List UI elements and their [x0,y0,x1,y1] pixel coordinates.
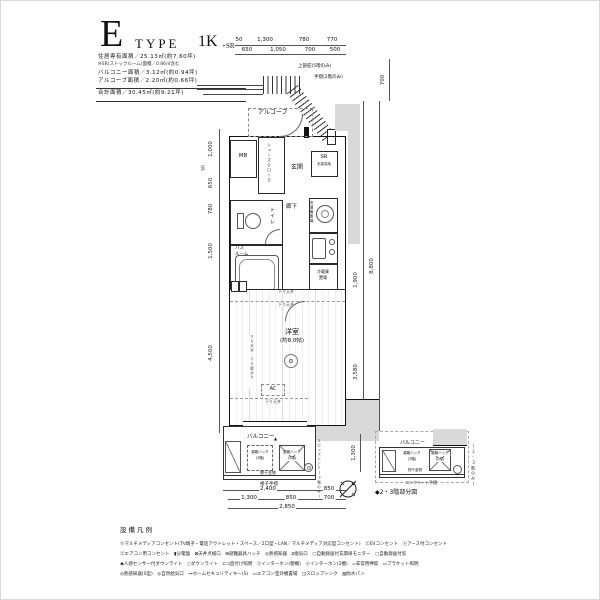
corridor-line [203,94,263,95]
dim-label: 50 [202,165,207,171]
subplan-rail-line [379,474,465,475]
dim-label: 700 [323,496,336,502]
washer-label: 洗濯機置場 [310,201,314,231]
dim-label: 500 [330,48,341,54]
subplan-roof-shading [433,429,467,446]
legend-row: ㋓エアコン用コンセント ▮分電盤 ⊠天井点検口 ⊞避難器具ハッチ ◎熱感知器 ⧄… [120,551,406,557]
subplan-balcony-label: バルコニー [399,441,426,446]
escape-hatch-2f-label1: 避難ハッチ [282,451,302,455]
dim-label: 3,580 [353,364,359,380]
fridge-label-line2: 置場 [319,276,327,280]
dim-line [379,101,380,431]
dim-label: 770 [327,38,338,44]
type-word: TYPE [135,37,180,50]
dim-label: 2,850 [278,505,296,511]
escape-hatch-3f-label1: 避難ハッチ [250,451,270,455]
legend-header: 設備凡例 [120,527,154,534]
plan-type-suffix: +SR [222,43,235,50]
dim-label: 1,500 [208,243,214,259]
hall-label: 廊下 [286,205,297,211]
dim-line [219,129,220,433]
toilet-bowl-icon [245,213,261,229]
compass-icon [337,478,359,500]
subplan-rail-label: コンクリート手摺 [405,481,437,485]
subplan-hatch3-label2: (3階) [407,458,417,462]
dim-label: 650 [242,48,253,54]
spec-total: 合計面積／30.45㎡(約9.21坪) [98,91,184,97]
balcony-partition [225,441,241,473]
escape-hatch-3f-label2: (3階) [255,457,265,461]
dim-label: 700 [305,48,316,54]
storage-room-sublabel: 天袋収納 [317,163,331,167]
dim-label: 850 [285,496,298,502]
plan-type: 1K [198,34,218,50]
subplan-hatch2-label2: (2階) [435,458,445,462]
dim-line [389,59,390,101]
common-area-shading [335,104,360,131]
floor-plan-page: E TYPE 1K +SR 住居専有面積／25.13㎡(約7.60坪) ※SR(… [0,0,600,600]
alarm-box [239,281,247,292]
balcony-marker: ▲ [274,437,277,441]
dim-line [360,434,361,472]
dim-line [235,54,346,55]
dim-label: 1,300 [240,496,258,502]
subplan-hatch3-label1: 避難ハッチ [402,452,422,456]
down-ceiling-label: 下り天井 [264,400,282,404]
corridor-line [197,89,263,90]
stove-burner-icon [329,249,335,255]
annotation-handrail: 手摺(2階のみ) [313,76,344,81]
subplan-caption: ◆2・3階部分図 [375,490,417,496]
balcony-rail-line [223,475,316,476]
dim-line [363,101,364,431]
dim-label: 780 [208,204,214,215]
subplan-hatch2-label1: 避難ハッチ [430,452,450,456]
title-divider-bottom [96,101,246,102]
ceiling-light-center-icon [289,359,293,363]
dim-label: 1,000 [208,141,214,157]
dim-label: 650 [208,178,214,189]
dim-label: 1,050 [270,48,286,54]
legend-row: ㋮マルチメディアコンセント(TV端子・電話アウトレット・スペース／2口型・LAN… [120,541,447,547]
slop-sink-inner-icon [307,466,311,470]
washing-machine-drum-icon [321,210,329,218]
dim-label: 8,800 [369,258,375,274]
balcony-label: バルコニー [246,435,275,441]
legend-row: ◎熱感知器(S型) ◎自然給気口 ⊶ホームセキュリティキー(S) ▭エアコン室外… [120,571,365,577]
subplan-partition [382,450,396,472]
spec-line-3: バルコニー面積／3.12㎡(約0.94坪) [98,71,198,77]
type-letter: E [100,15,123,53]
dim-label: 4,500 [208,345,214,361]
dim-label: 850 [323,487,336,493]
storage-room-label: SR [321,155,328,160]
legend-row: ◉人感センサー付ダウンライト ○ダウンライト ⊏⊐直付け照明 ㋑インターホン(親… [120,561,419,567]
subplan-pole-label: 物干金物 [407,469,423,473]
spec-line-1: 住居専有面積／25.13㎡(約7.60坪) [98,55,196,61]
dim-label: 50 [236,38,243,44]
kitchen-sink-icon [312,238,326,259]
entrance-label: 玄関 [291,165,303,171]
fridge-label-line1: 冷蔵庫 [317,270,329,274]
common-area-shading [348,129,360,244]
laundry-pole-label: 物干金物 [259,471,277,475]
corridor-line [197,85,263,86]
meter-box-label: MB [239,154,248,160]
down-ceiling-label: 下り天井 [277,290,295,294]
wall-note-label: 下り天井・下り壁あり [249,335,255,387]
main-room-size: (約8.0帖) [279,339,305,345]
dim-label: 2,400 [259,487,277,493]
spec-line-2: ※SR(ストックルーム)面積／0.86㎡含む [98,63,180,68]
dim-label: 1,300 [257,38,273,44]
dim-label: 1,300 [351,445,357,461]
subplan-slop-sink-icon [453,465,462,474]
dim-label: 1,900 [353,272,359,288]
escape-hatch-2f-label2: (2階) [287,457,297,461]
dim-label: 700 [380,75,386,86]
stove-burner-icon [329,239,335,245]
bath-label-line1: バス [235,247,244,252]
toilet-tank-icon [237,213,244,229]
ac-label: AC [269,387,278,392]
subplan-side-note: (2・3階のみ) [471,443,475,481]
annotation-eaves: 上部庇(5階のみ) [297,65,332,70]
alarm-box [231,281,239,292]
dim-label: 780 [299,38,310,44]
slop-sink-note: スロップシンク(3階のみ) [317,439,321,481]
main-room-label: 洋室 [284,329,300,336]
spec-line-4: アルコーブ面積／2.20㎡(約0.66坪) [98,79,197,85]
shoe-closet-label: シューズクローク [267,143,271,189]
